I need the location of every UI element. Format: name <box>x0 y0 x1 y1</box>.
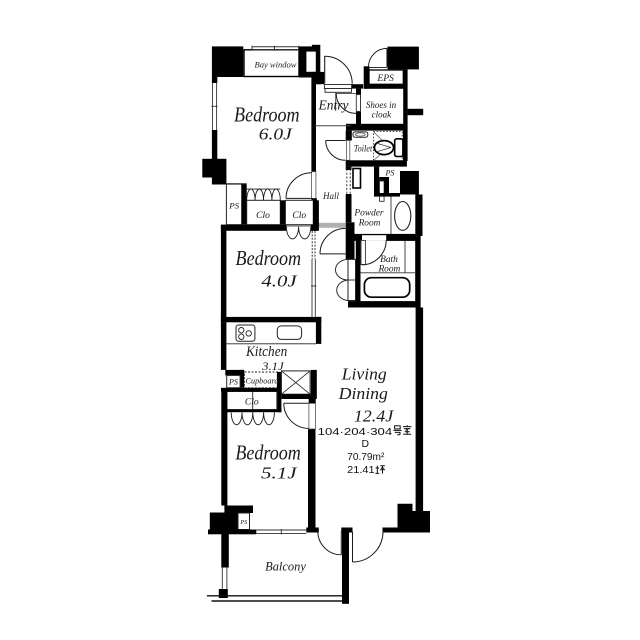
svg-text:Balcony: Balcony <box>265 560 306 574</box>
svg-text:Clo: Clo <box>245 397 259 408</box>
svg-text:cloak: cloak <box>372 109 392 119</box>
svg-text:D: D <box>362 439 370 450</box>
svg-text:3.1J: 3.1J <box>261 359 284 373</box>
svg-text:Clo: Clo <box>292 210 306 221</box>
svg-text:PS: PS <box>228 200 239 210</box>
svg-text:12.4J: 12.4J <box>354 407 394 426</box>
svg-text:PS: PS <box>239 519 247 526</box>
svg-text:Hall: Hall <box>322 191 340 201</box>
svg-text:Bath: Bath <box>380 255 398 265</box>
svg-text:6.0J: 6.0J <box>259 125 294 144</box>
svg-text:Dining: Dining <box>338 384 388 403</box>
svg-text:Entry: Entry <box>318 97 349 112</box>
svg-text:Clo: Clo <box>256 210 270 221</box>
svg-text:EPS: EPS <box>376 73 394 84</box>
svg-text:Toilet: Toilet <box>354 143 373 153</box>
svg-text:PS: PS <box>228 378 238 387</box>
svg-text:4.0J: 4.0J <box>261 271 298 290</box>
svg-text:70.79m²: 70.79m² <box>347 452 385 463</box>
svg-text:Living: Living <box>341 364 387 383</box>
svg-text:Room: Room <box>377 265 400 275</box>
svg-text:21.41: 21.41 <box>347 465 375 476</box>
svg-text:104·204·304: 104·204·304 <box>318 427 393 438</box>
svg-text:Powder: Powder <box>353 209 384 219</box>
svg-text:Bedroom: Bedroom <box>234 103 300 127</box>
svg-text:5.1J: 5.1J <box>261 464 298 483</box>
svg-text:Kitchen: Kitchen <box>245 344 287 360</box>
svg-text:Bay window: Bay window <box>255 59 297 69</box>
svg-text:Bedroom: Bedroom <box>236 246 302 270</box>
svg-text:PS: PS <box>385 168 395 177</box>
svg-text:Room: Room <box>358 218 381 228</box>
svg-text:Cupboard: Cupboard <box>246 377 280 386</box>
svg-text:Bedroom: Bedroom <box>235 440 301 464</box>
